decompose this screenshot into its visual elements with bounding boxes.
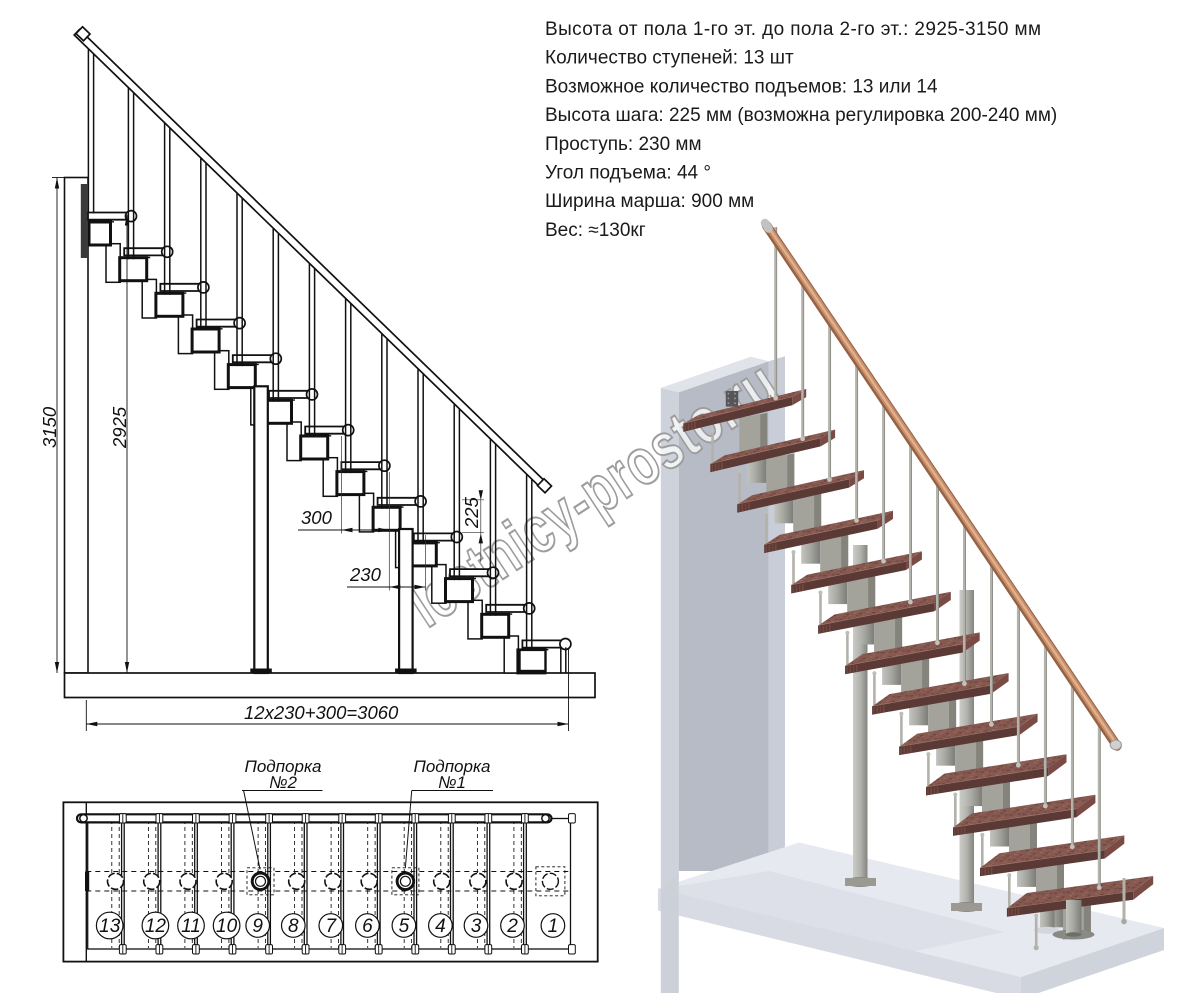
svg-text:10: 10 bbox=[216, 916, 238, 937]
svg-text:№1: №1 bbox=[438, 773, 466, 792]
svg-text:Возможное количество подъемов:: Возможное количество подъемов: 13 или 14 bbox=[545, 76, 938, 97]
svg-text:300: 300 bbox=[301, 507, 333, 528]
svg-text:Ширина марша: 900 мм: Ширина марша: 900 мм bbox=[545, 191, 754, 212]
svg-text:9: 9 bbox=[252, 916, 263, 937]
svg-text:Количество ступеней: 13 шт: Количество ступеней: 13 шт bbox=[545, 48, 794, 69]
svg-text:12: 12 bbox=[145, 916, 167, 937]
svg-text:Высота шага: 225 мм (возможна: Высота шага: 225 мм (возможна регулировк… bbox=[545, 105, 1057, 126]
svg-text:№2: №2 bbox=[269, 773, 297, 792]
svg-text:Высота от пола 1-го эт. до пол: Высота от пола 1-го эт. до пола 2-го эт.… bbox=[545, 19, 1041, 40]
svg-text:3: 3 bbox=[471, 916, 482, 937]
svg-text:Угол подъема: 44 °: Угол подъема: 44 ° bbox=[545, 163, 711, 184]
svg-text:Вес: ≈130кг: Вес: ≈130кг bbox=[545, 220, 646, 241]
svg-text:5: 5 bbox=[399, 916, 410, 937]
svg-text:2: 2 bbox=[506, 916, 518, 937]
svg-text:Проступь: 230 мм: Проступь: 230 мм bbox=[545, 134, 702, 155]
svg-text:3150: 3150 bbox=[39, 406, 60, 448]
svg-text:8: 8 bbox=[288, 916, 299, 937]
svg-text:4: 4 bbox=[435, 916, 446, 937]
svg-text:2925: 2925 bbox=[109, 406, 130, 449]
svg-text:7: 7 bbox=[326, 916, 338, 937]
svg-text:11: 11 bbox=[181, 916, 201, 937]
svg-text:6: 6 bbox=[362, 916, 373, 937]
svg-text:225: 225 bbox=[461, 496, 482, 529]
svg-text:1: 1 bbox=[548, 916, 559, 937]
svg-text:12x230+300=3060: 12x230+300=3060 bbox=[244, 702, 399, 723]
svg-text:13: 13 bbox=[99, 916, 121, 937]
svg-text:230: 230 bbox=[349, 564, 382, 585]
